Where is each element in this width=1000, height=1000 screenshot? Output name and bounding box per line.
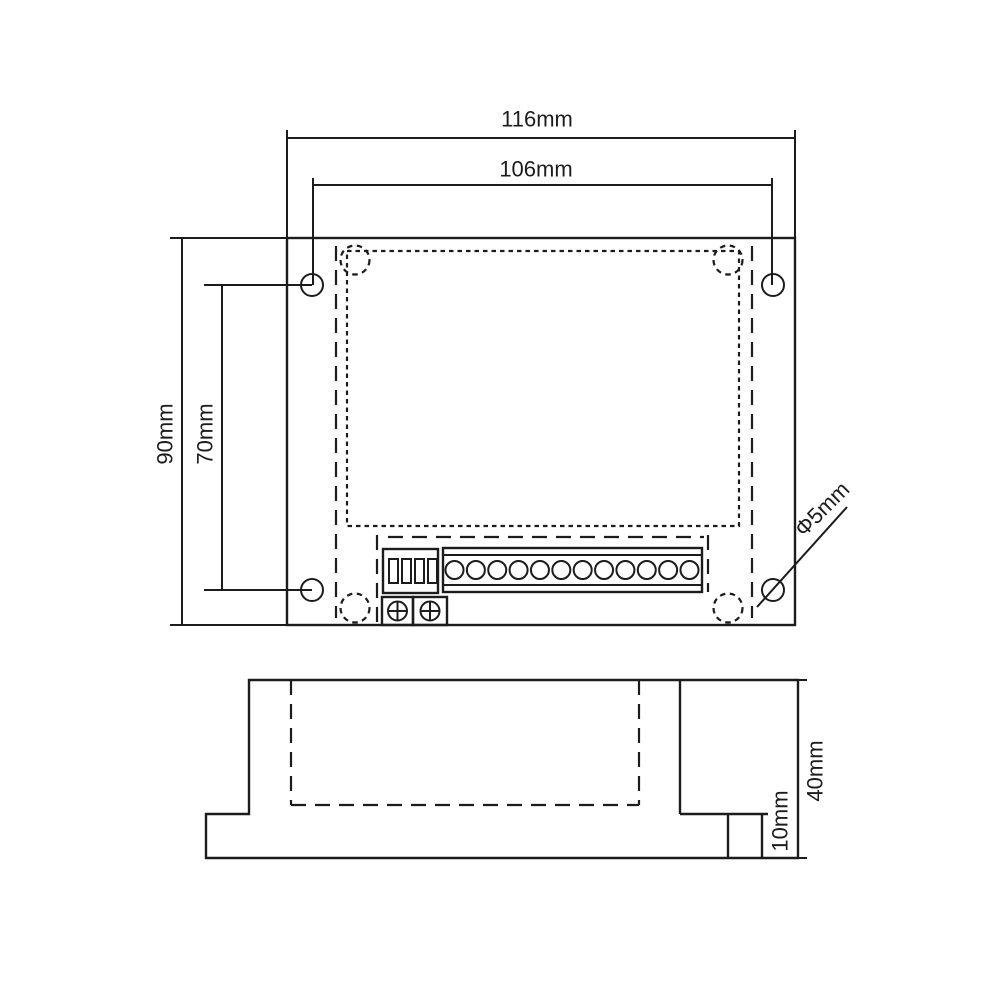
standoff-boss (341, 594, 370, 623)
dimension-label-hole-spacing-width: 106mm (499, 157, 572, 182)
dip-switch-lever (415, 559, 424, 583)
top-view (287, 238, 795, 626)
terminal-hole (510, 561, 528, 579)
terminal-holes (446, 561, 699, 579)
terminal-hole (552, 561, 570, 579)
terminal-hole (638, 561, 656, 579)
dimension-hole-spacing-depth: 70mm (193, 285, 313, 590)
dip-switch-levers (389, 559, 437, 583)
terminal-hole (467, 561, 485, 579)
dimension-base-height: 10mm (768, 790, 793, 851)
dimension-overall-height: 40mm (798, 680, 828, 858)
dimension-drawing: 116mm 106mm 90mm 70mm Φ5mm (0, 0, 1000, 1000)
terminal-hole (616, 561, 634, 579)
side-hidden-cavity-outline (291, 680, 639, 805)
dimension-label-overall-height: 40mm (803, 740, 828, 801)
terminal-hole (488, 561, 506, 579)
terminal-hole (574, 561, 592, 579)
mounting-holes (301, 274, 784, 601)
dip-switch (383, 549, 438, 593)
dimension-label-overall-depth: 90mm (153, 403, 178, 464)
terminal-hole (595, 561, 613, 579)
terminal-hole (681, 561, 699, 579)
standoff-boss (714, 594, 743, 623)
screw-terminal-block (382, 597, 447, 625)
standoff-boss (341, 246, 370, 275)
dimension-hole-diameter: Φ5mm (757, 477, 854, 607)
technical-drawing-page: 116mm 106mm 90mm 70mm Φ5mm (0, 0, 1000, 1000)
pcb-hidden-outline (347, 251, 739, 526)
dimension-label-overall-width: 116mm (501, 107, 573, 132)
terminal-hole (659, 561, 677, 579)
side-view (206, 680, 798, 858)
dip-switch-lever (389, 559, 398, 583)
terminal-hole (446, 561, 464, 579)
dimension-label-hole-spacing-depth: 70mm (193, 403, 218, 464)
terminal-hole (531, 561, 549, 579)
dip-switch-lever (402, 559, 411, 583)
dimension-hole-spacing-width: 106mm (313, 157, 772, 286)
dimension-label-base-height: 10mm (768, 790, 793, 851)
dip-switch-lever (428, 559, 437, 583)
terminal-block (443, 548, 702, 592)
side-profile-outline (206, 680, 798, 858)
enclosure-outline (287, 238, 795, 625)
